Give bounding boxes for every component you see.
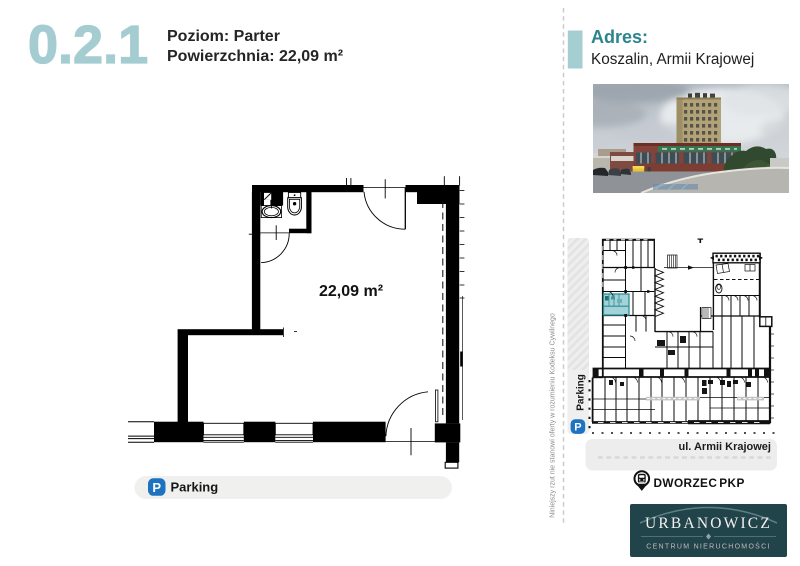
svg-text:P: P xyxy=(574,422,581,434)
svg-text:DWORZECPKP: DWORZECPKP xyxy=(654,476,745,490)
svg-text:P: P xyxy=(152,480,161,495)
svg-text:Parking: Parking xyxy=(171,480,219,495)
svg-text:URBANOWICZ: URBANOWICZ xyxy=(645,515,772,532)
svg-text:CENTRUM NIERUCHOMOŚCI: CENTRUM NIERUCHOMOŚCI xyxy=(646,542,771,551)
svg-text:Parking: Parking xyxy=(575,374,586,411)
